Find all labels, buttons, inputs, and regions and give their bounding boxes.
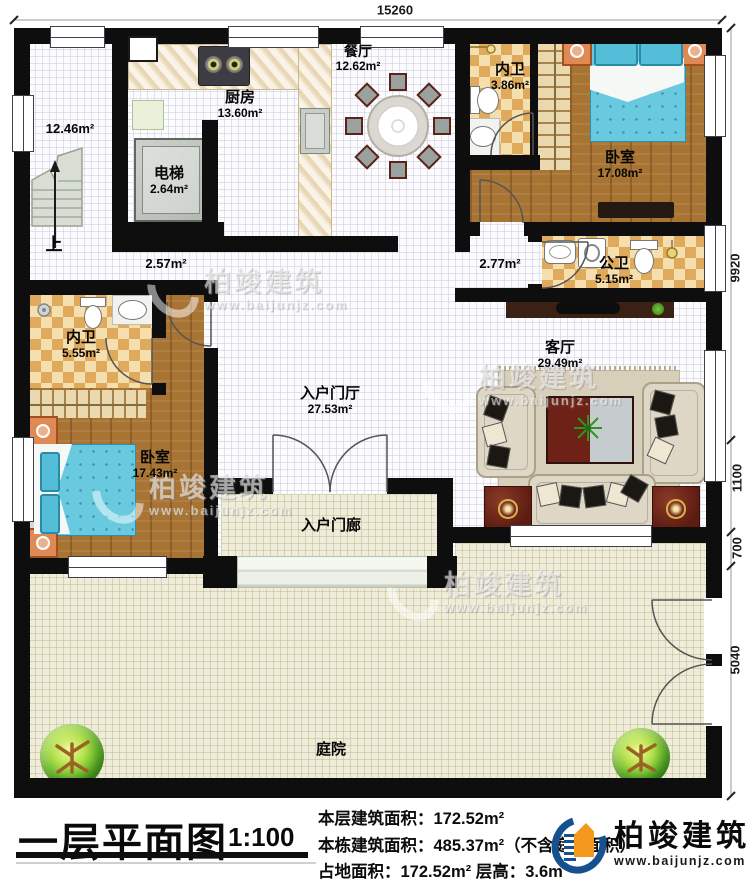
room-label-bath-left: 内卫 5.55m² [31,330,131,360]
stairs-up-label: 上 [38,230,70,255]
area-label-corridor-left: 2.57m² [116,256,216,271]
company-logo-icon [552,816,606,874]
pillow [639,42,683,66]
dim-right-1100: 1100 [730,464,745,492]
dim-right-5040: 5040 [728,646,743,675]
area-label-stairs: 12.46m² [20,121,120,136]
company-logo: 柏竣建筑 www.baijunjz.com [552,816,750,874]
porch-steps [237,556,429,588]
wall [14,778,722,798]
room-label-bedroom-top: 卧室 17.08m² [570,150,670,180]
title-underline-shadow [16,862,316,864]
wall [706,726,722,798]
room-label-kitchen: 厨房 13.60m² [190,90,290,120]
gate-post [706,654,722,666]
wall [203,556,237,588]
pillow [40,494,60,534]
cushion [536,482,561,507]
wall [455,288,706,302]
wall [14,280,218,295]
burner-icon [226,56,243,73]
room-label-entrance-hall: 入户门厅 27.53m² [270,386,390,416]
wall [528,222,542,242]
wardrobe-left [30,390,146,418]
title-underline [16,852,308,858]
wall [202,120,218,236]
floorplan-canvas: 柏竣建筑 www.baijunjz.com 柏竣建筑 www.baijunjz.… [0,0,750,895]
wall [455,155,540,170]
wall [455,222,480,236]
window [12,437,34,522]
drawing-scale: 1:100 [228,822,295,853]
sink-icon [470,126,496,147]
window [50,26,105,48]
room-label-dining: 餐厅 12.62m² [308,44,408,73]
wall [14,558,68,574]
wall [427,556,457,588]
burner-icon [205,56,222,73]
cushion [583,485,607,509]
room-label-bath-top: 内卫 3.86m² [470,62,550,92]
cushion [654,414,678,438]
side-table [652,486,700,532]
area-label-corridor-right: 2.77m² [450,256,550,271]
room-label-porch: 入户门廊 [271,518,391,535]
wall [152,383,166,395]
stove-icon [198,46,250,86]
dresser-tv [598,202,674,218]
room-label-bedroom-left: 卧室 17.43m² [105,450,205,480]
window [704,55,726,137]
wall [112,236,398,252]
coffee-table [546,396,634,464]
wall [437,527,510,543]
wall [524,222,706,236]
room-label-living: 客厅 29.49m² [500,340,620,370]
room-label-public-bath: 公卫 5.15m² [564,256,664,286]
wall [152,280,166,338]
wall [204,348,218,574]
wall [112,222,224,236]
room-label-elevator: 电梯 2.64m² [134,166,204,196]
toilet-bowl-icon [84,305,102,329]
plant-icon [652,303,664,315]
pillow [594,42,638,66]
page-title: 一层平面图 [18,810,228,868]
sink-icon [118,300,147,320]
logo-brand: 柏竣建筑 [614,822,750,852]
window [228,26,319,48]
tv-icon [556,302,620,314]
room-label-courtyard: 庭院 [281,742,381,759]
kitchen-sink-icon [300,108,330,154]
kitchen-appliance [132,100,164,130]
wall [437,478,453,558]
wall [204,280,218,302]
window [704,350,726,482]
wall [203,478,273,494]
wall [530,28,538,170]
dim-right-700: 700 [730,537,745,559]
cushion [486,444,510,468]
window [704,225,726,292]
wall [112,44,128,236]
window [510,525,652,547]
pillow [40,452,60,492]
wall [455,28,470,252]
logo-url: www.baijunjz.com [614,855,750,868]
dim-right-9920: 9920 [728,254,743,283]
window [68,556,167,578]
column [128,36,158,62]
cushion [559,485,583,509]
dim-top: 15260 [377,3,413,18]
wall [387,478,437,494]
wall [650,527,706,543]
